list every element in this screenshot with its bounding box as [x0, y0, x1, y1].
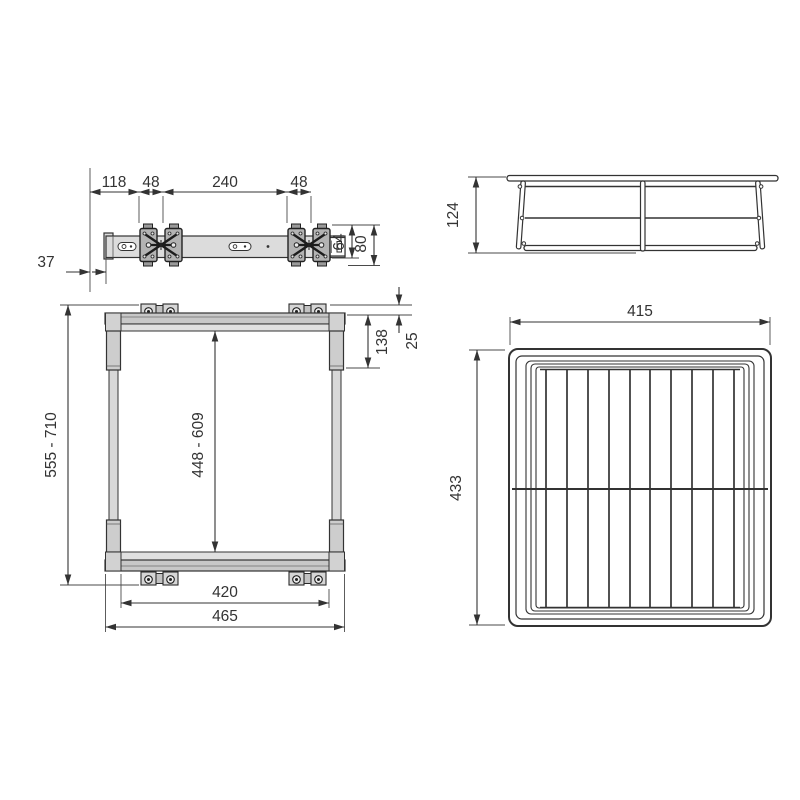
dim-side-offset-label: 37 — [37, 254, 54, 271]
basket-top-view: 415 433 — [448, 303, 771, 626]
dim-inner-height-label: 448 - 609 — [190, 412, 207, 478]
dim-outer-width-label: 465 — [212, 608, 238, 625]
dim-top-offset-label: 25 — [404, 332, 421, 349]
basket-post-middle — [641, 181, 646, 251]
dim-rear-offset-label: 118 — [102, 174, 127, 191]
wire-nub — [518, 185, 522, 189]
frame-rail-left-sleeve-top — [107, 331, 121, 370]
frame-rail-left-sleeve-bottom — [107, 520, 121, 552]
slide-rail-top-view: 118 48 240 48 37 64 80 — [37, 168, 380, 292]
frame-corner — [106, 313, 122, 331]
dim-bracket-a-label: 48 — [142, 174, 159, 191]
frame-rail-right-rod — [332, 370, 341, 520]
dim-basket-depth-label: 433 — [448, 475, 465, 501]
rail-slot-dot — [130, 245, 132, 247]
rail-slot — [118, 243, 136, 251]
frame-rail-right-sleeve-top — [330, 331, 344, 370]
wire-nub — [522, 242, 526, 246]
frame-corner — [329, 313, 345, 331]
wire-nub — [520, 216, 524, 220]
frame-top-tube — [121, 324, 329, 331]
frame-top-bar — [105, 313, 345, 324]
rail-slot-hole — [122, 245, 126, 249]
dim-frame-height-label: 555 - 710 — [43, 412, 60, 478]
dim-basket-width-label: 415 — [627, 303, 653, 320]
frame-rail-right-sleeve-bottom — [330, 520, 344, 552]
slide-mount-bracket-left — [140, 224, 182, 266]
rail-slot-dot — [244, 245, 246, 247]
basket-post-right — [756, 181, 765, 249]
slide-mount-bracket-right — [288, 224, 330, 266]
frame-bottom-tube — [121, 552, 329, 560]
basket-outer-frame — [509, 349, 771, 626]
frame-rail-left-rod — [109, 370, 118, 520]
dim-total-height-label: 80 — [353, 235, 370, 253]
frame-corner — [106, 552, 122, 571]
frame-front-view: 555 - 710 448 - 609 138 25 420 465 — [43, 287, 421, 632]
frame-corner — [329, 552, 345, 571]
dim-bracket-height-label: 64 — [331, 233, 348, 251]
dim-inner-width-label: 420 — [212, 584, 238, 601]
dimension-drawing: 118 48 240 48 37 64 80 — [0, 0, 800, 800]
dim-bracket-spacing-label: 240 — [212, 174, 238, 191]
rail-slot — [229, 243, 251, 251]
basket-post-left — [516, 181, 525, 249]
technical-drawing-page: 118 48 240 48 37 64 80 — [0, 0, 800, 800]
runner-bracket-bottom-right — [289, 572, 326, 585]
basket-side-view: 124 — [445, 176, 778, 254]
rail-hole — [267, 245, 270, 248]
frame-bottom-bar — [105, 560, 345, 571]
dim-bracket-b-label: 48 — [290, 174, 307, 191]
wire-nub — [759, 185, 763, 189]
basket-top-rail — [507, 176, 778, 182]
dim-upper-section-label: 138 — [374, 329, 391, 355]
dim-basket-height-label: 124 — [445, 202, 462, 228]
runner-bracket-bottom-left — [141, 572, 178, 585]
rail-slot-hole — [233, 245, 237, 249]
wire-nub — [755, 242, 759, 246]
wire-nub — [757, 216, 761, 220]
